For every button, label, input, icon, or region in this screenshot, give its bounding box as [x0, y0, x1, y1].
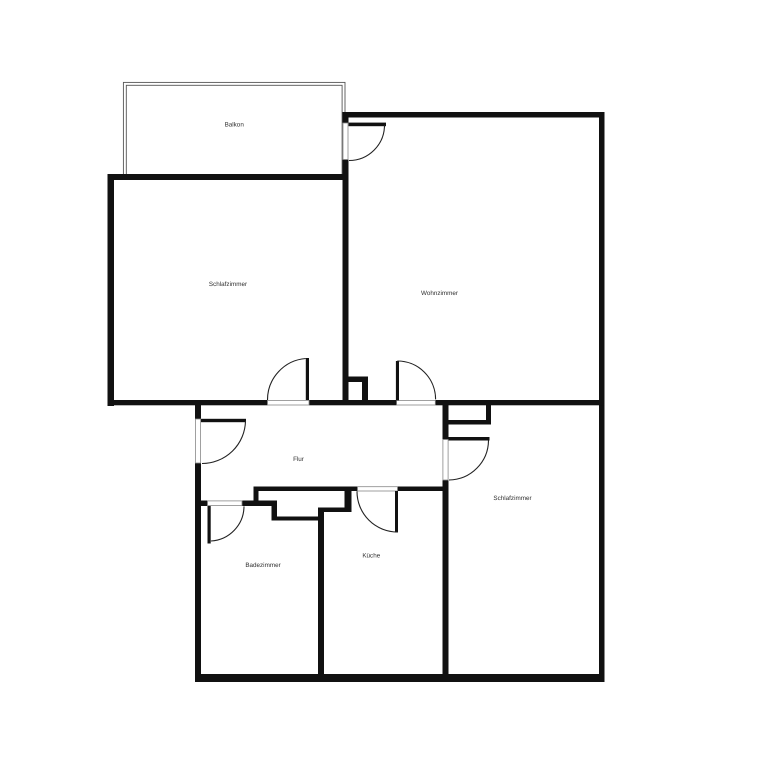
svg-text:Badezimmer: Badezimmer [245, 562, 280, 569]
svg-text:Schlafzimmer: Schlafzimmer [493, 495, 531, 502]
svg-text:Flur: Flur [293, 456, 304, 463]
svg-text:Balkon: Balkon [225, 122, 245, 129]
svg-text:Wohnzimmer: Wohnzimmer [421, 290, 458, 297]
svg-text:Küche: Küche [362, 552, 380, 559]
svg-text:Schlafzimmer: Schlafzimmer [209, 281, 247, 288]
